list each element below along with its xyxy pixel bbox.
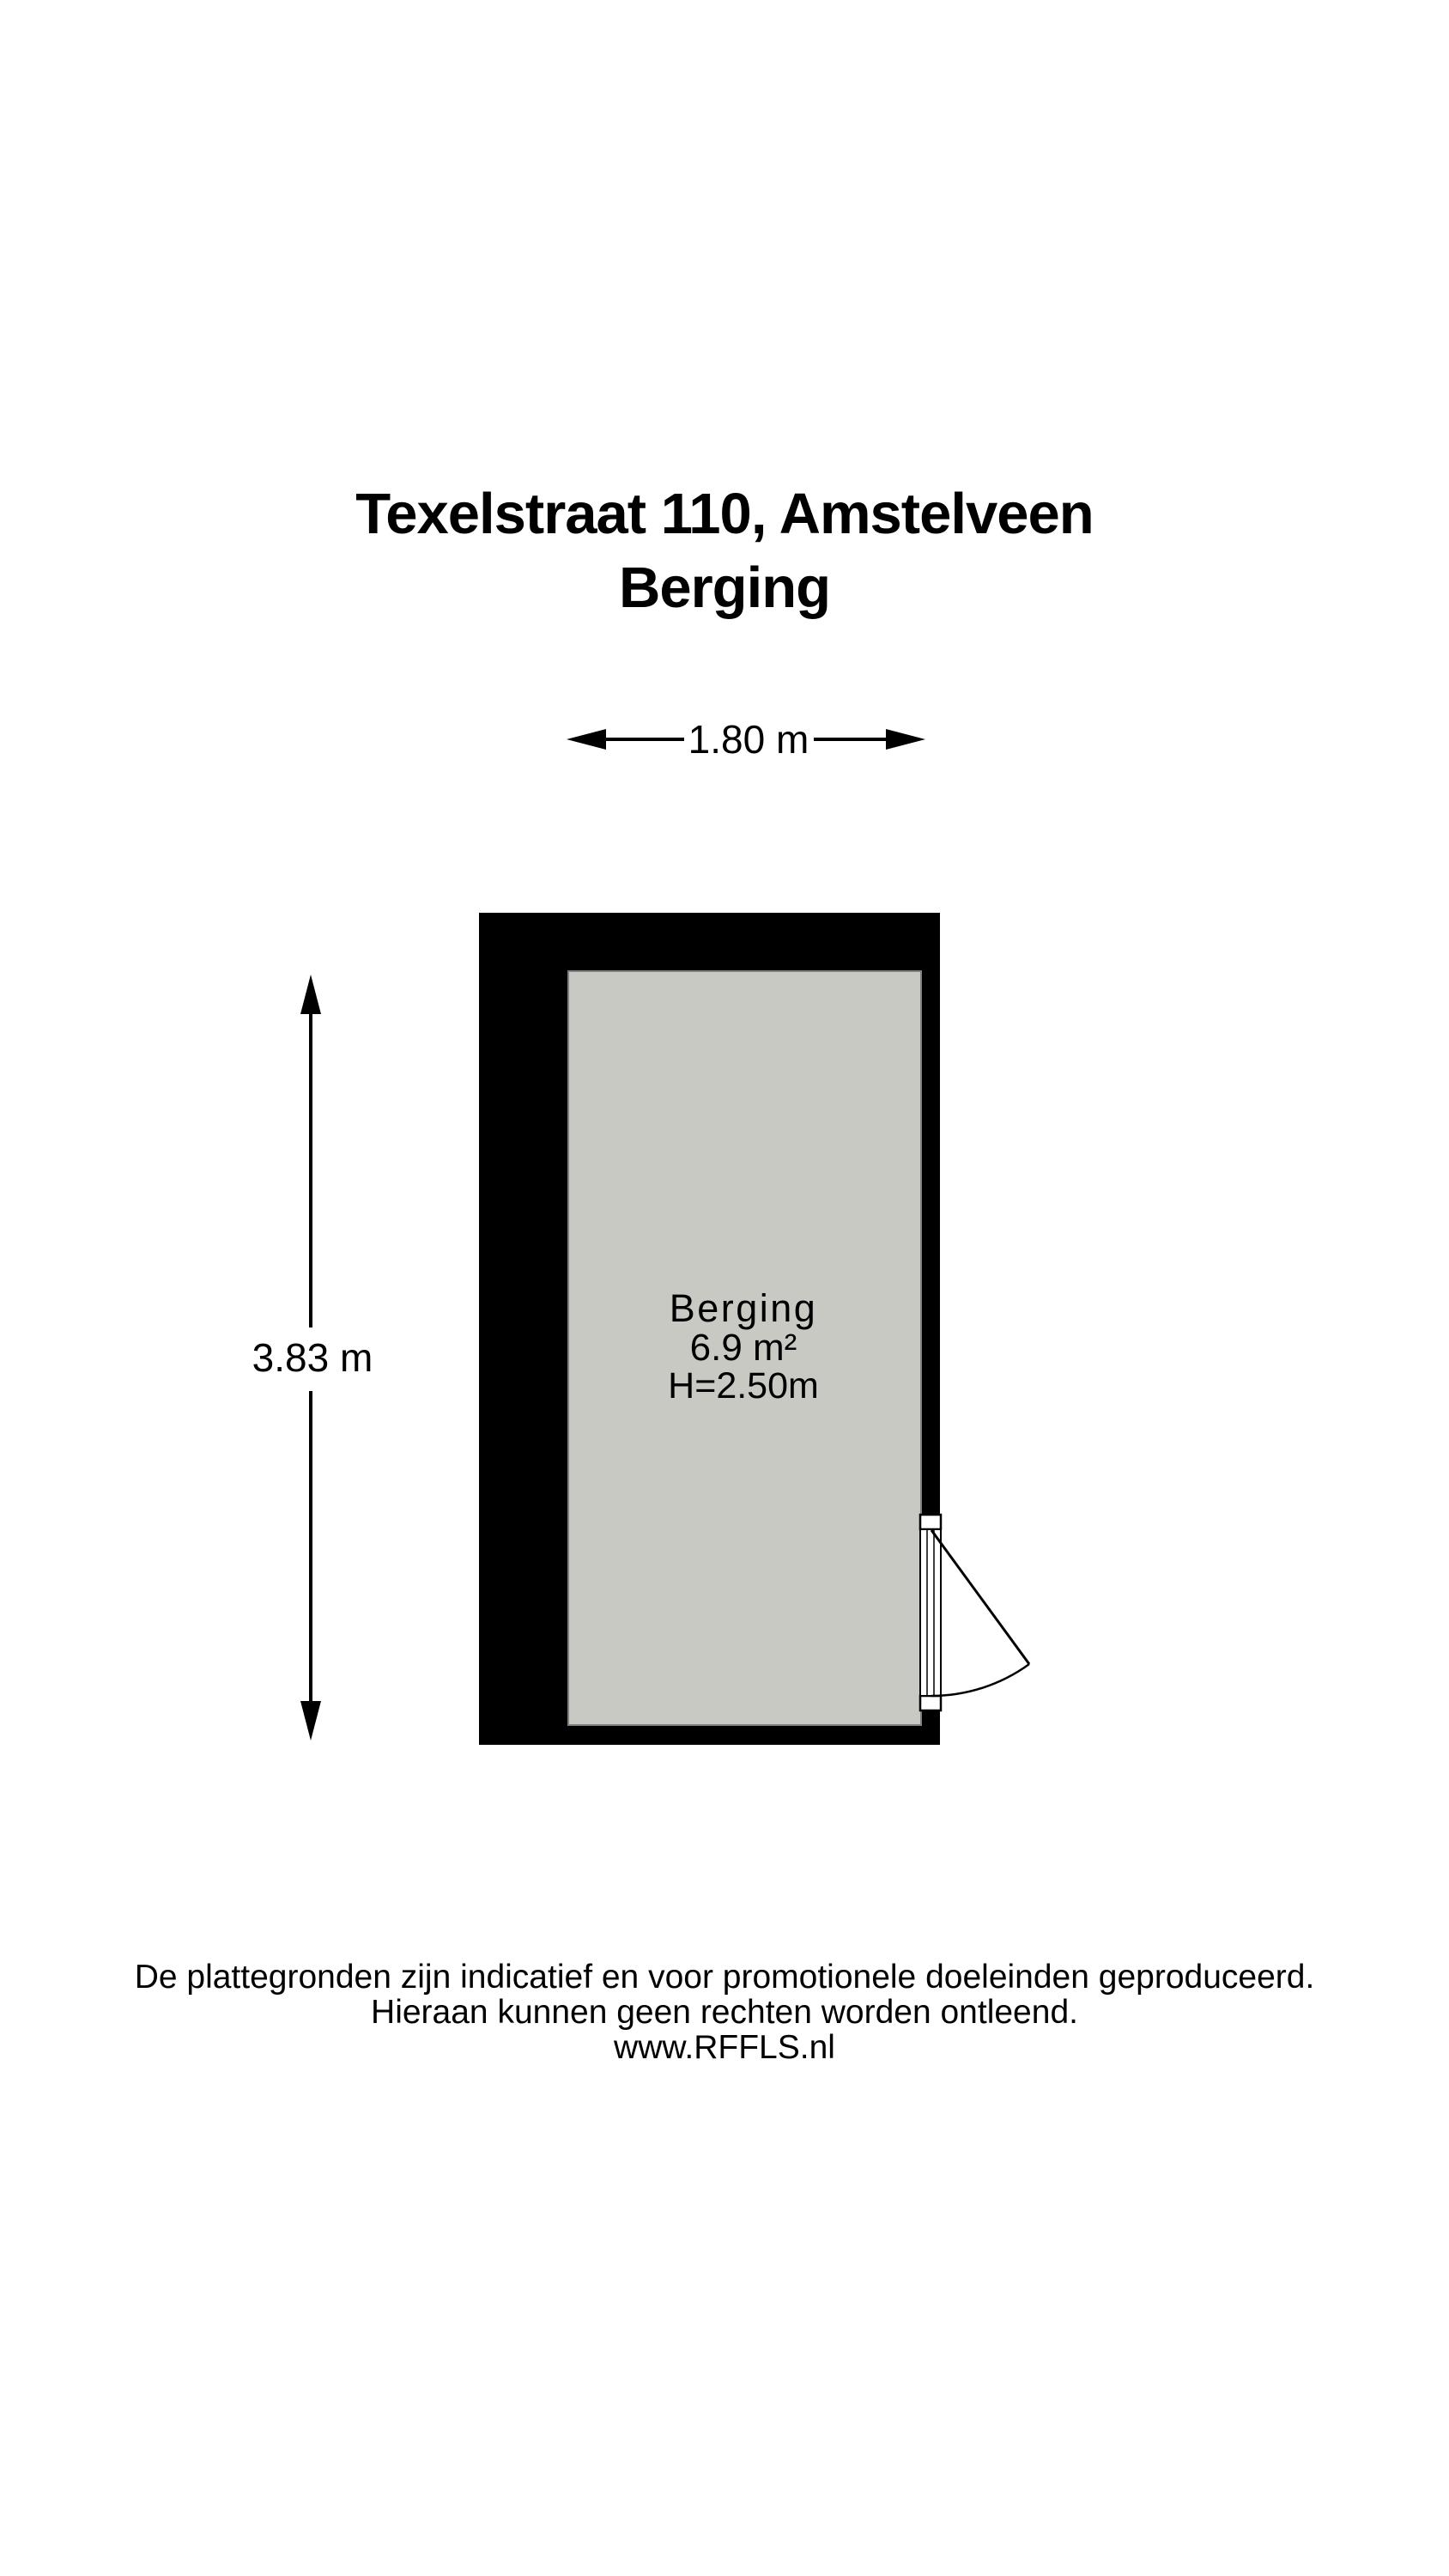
room-label: Berging 6.9 m² H=2.50m (668, 1288, 819, 1405)
door-jamb-top (920, 1515, 941, 1529)
disclaimer: De plattegronden zijn indicatief en voor… (0, 1959, 1449, 2065)
height-arrowhead-bottom-icon (300, 1701, 321, 1741)
floorplan-page: Texelstraat 110, Amstelveen Berging (0, 0, 1449, 2576)
width-arrowhead-left-icon (567, 729, 606, 750)
width-dimension-label: 1.80 m (688, 716, 809, 762)
disclaimer-line-2: Hieraan kunnen geen rechten worden ontle… (0, 1995, 1449, 2030)
door-swing-arc (931, 1664, 1029, 1696)
height-arrowhead-top-icon (300, 975, 321, 1014)
width-arrowhead-right-icon (886, 729, 925, 750)
room-ceiling-height: H=2.50m (668, 1367, 819, 1405)
door-jamb-bottom (920, 1696, 941, 1710)
height-dimension-label: 3.83 m (252, 1334, 373, 1381)
room-area: 6.9 m² (668, 1329, 819, 1367)
room-name: Berging (668, 1288, 819, 1329)
door-leaf (920, 1529, 941, 1696)
disclaimer-website: www.RFFLS.nl (0, 2030, 1449, 2065)
disclaimer-line-1: De plattegronden zijn indicatief en voor… (0, 1959, 1449, 1995)
door-open-line (931, 1530, 1029, 1664)
